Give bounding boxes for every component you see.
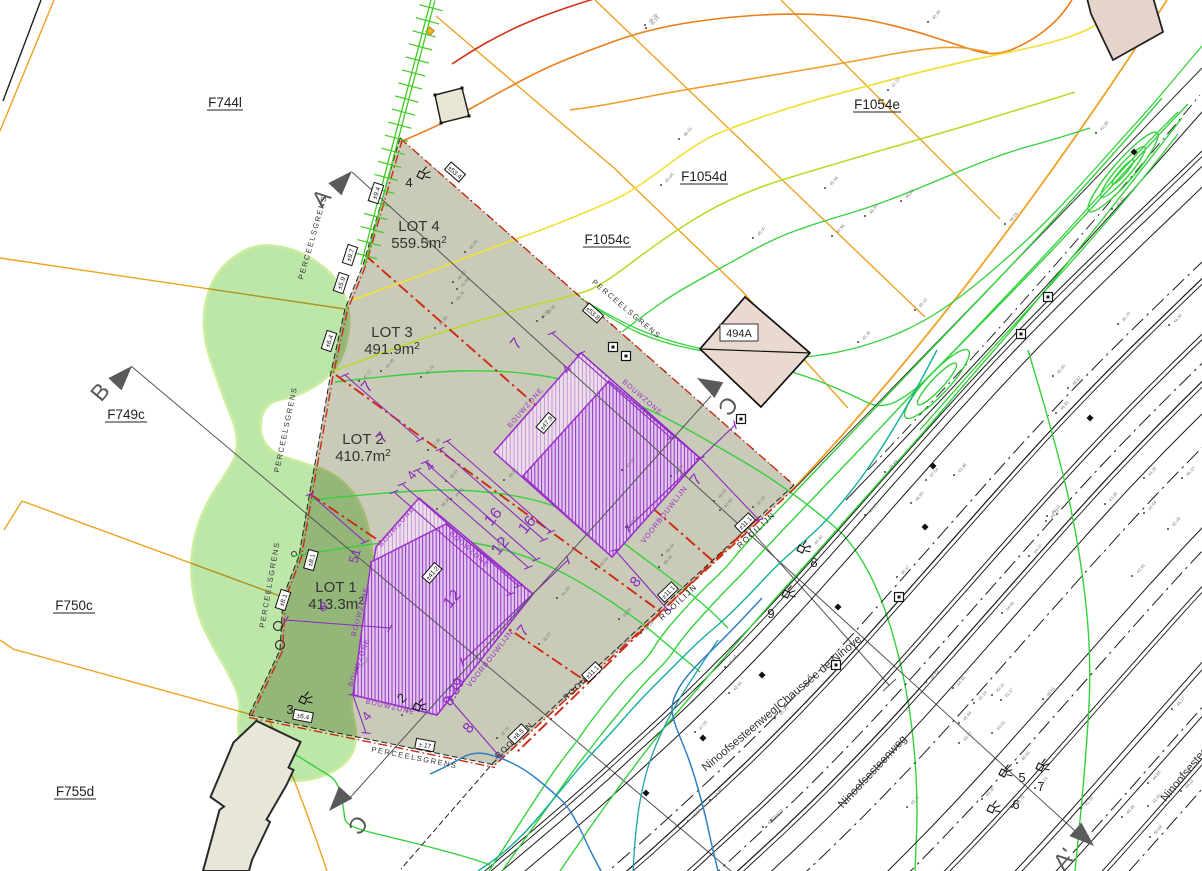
svg-text:3: 3 [286,702,293,717]
svg-text:413.3m2: 413.3m2 [308,596,364,613]
svg-text:9: 9 [767,606,774,621]
svg-text:F1054c: F1054c [584,232,629,247]
svg-text:8: 8 [810,555,817,570]
svg-text:F755d: F755d [56,784,94,799]
svg-text:559.5m2: 559.5m2 [391,235,447,252]
svg-text:5: 5 [1018,770,1025,785]
svg-text:LOT 1: LOT 1 [315,579,356,596]
svg-text:494A: 494A [726,328,752,340]
svg-text:F744l: F744l [208,95,242,110]
svg-text:F750c: F750c [55,598,93,613]
svg-text:F749c: F749c [107,407,145,422]
svg-text:F1054e: F1054e [854,97,900,112]
svg-text:4: 4 [405,175,412,190]
svg-text:LOT 3: LOT 3 [371,324,412,341]
svg-text:491.9m2: 491.9m2 [364,341,420,358]
svg-text:F1054d: F1054d [681,169,727,184]
svg-text:410.7m2: 410.7m2 [335,448,391,465]
svg-text:LOT 4: LOT 4 [398,218,439,235]
